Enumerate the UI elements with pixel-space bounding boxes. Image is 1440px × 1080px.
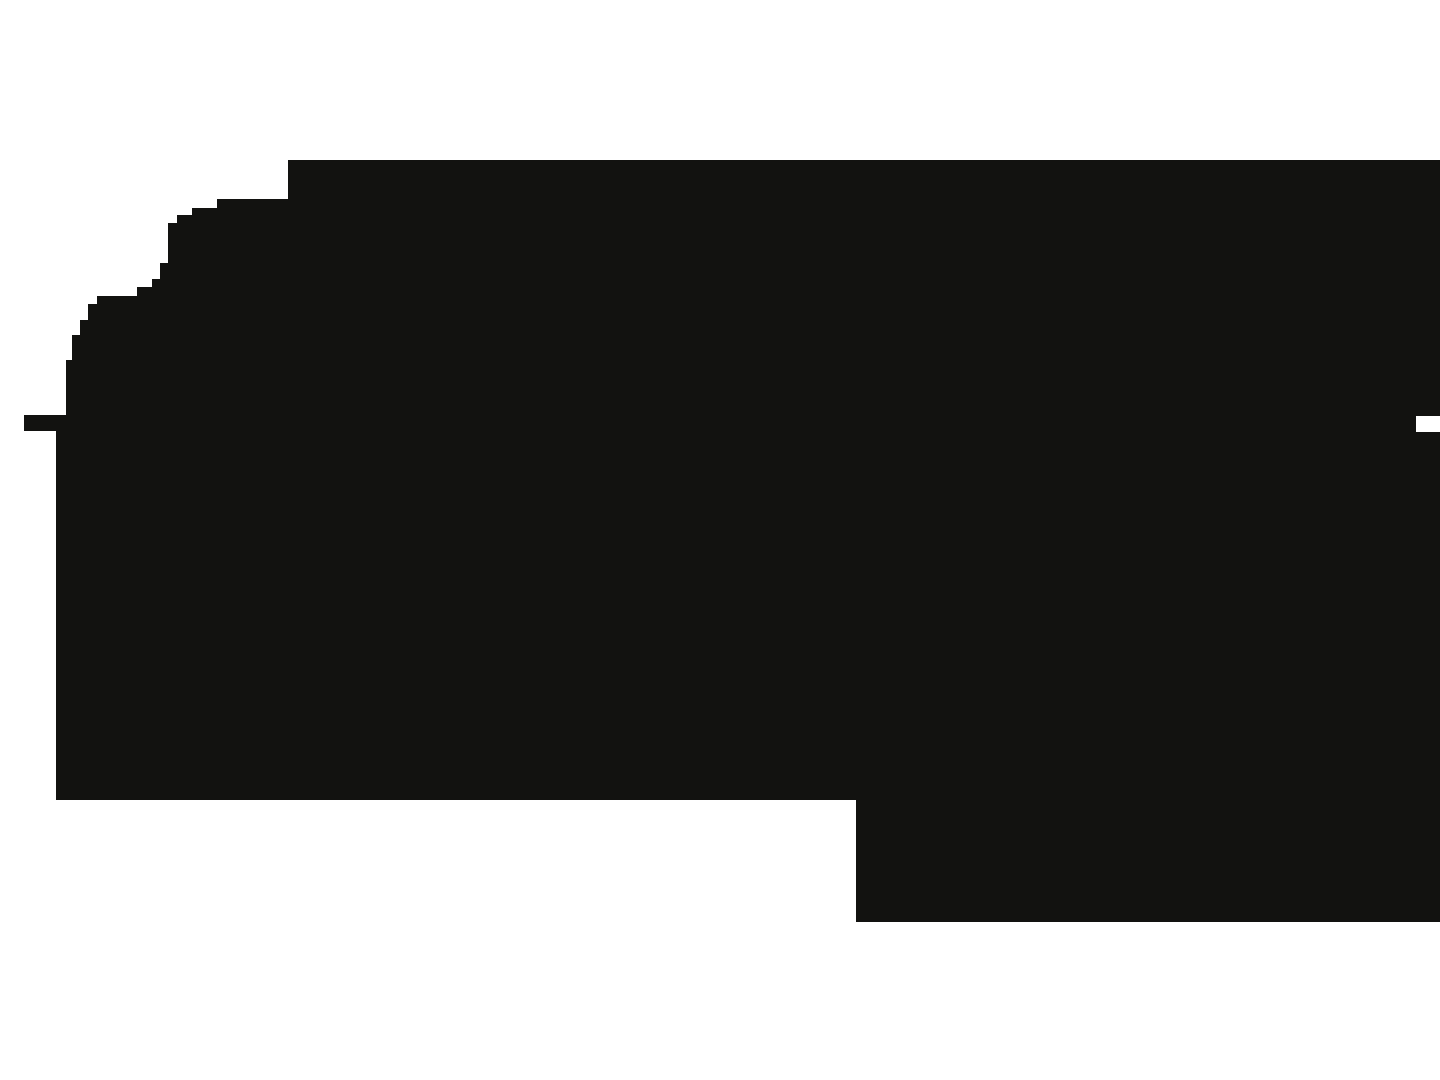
page-background bbox=[0, 0, 1440, 1080]
silhouette-shape bbox=[24, 160, 1440, 922]
silhouette-canvas bbox=[0, 0, 1440, 1080]
